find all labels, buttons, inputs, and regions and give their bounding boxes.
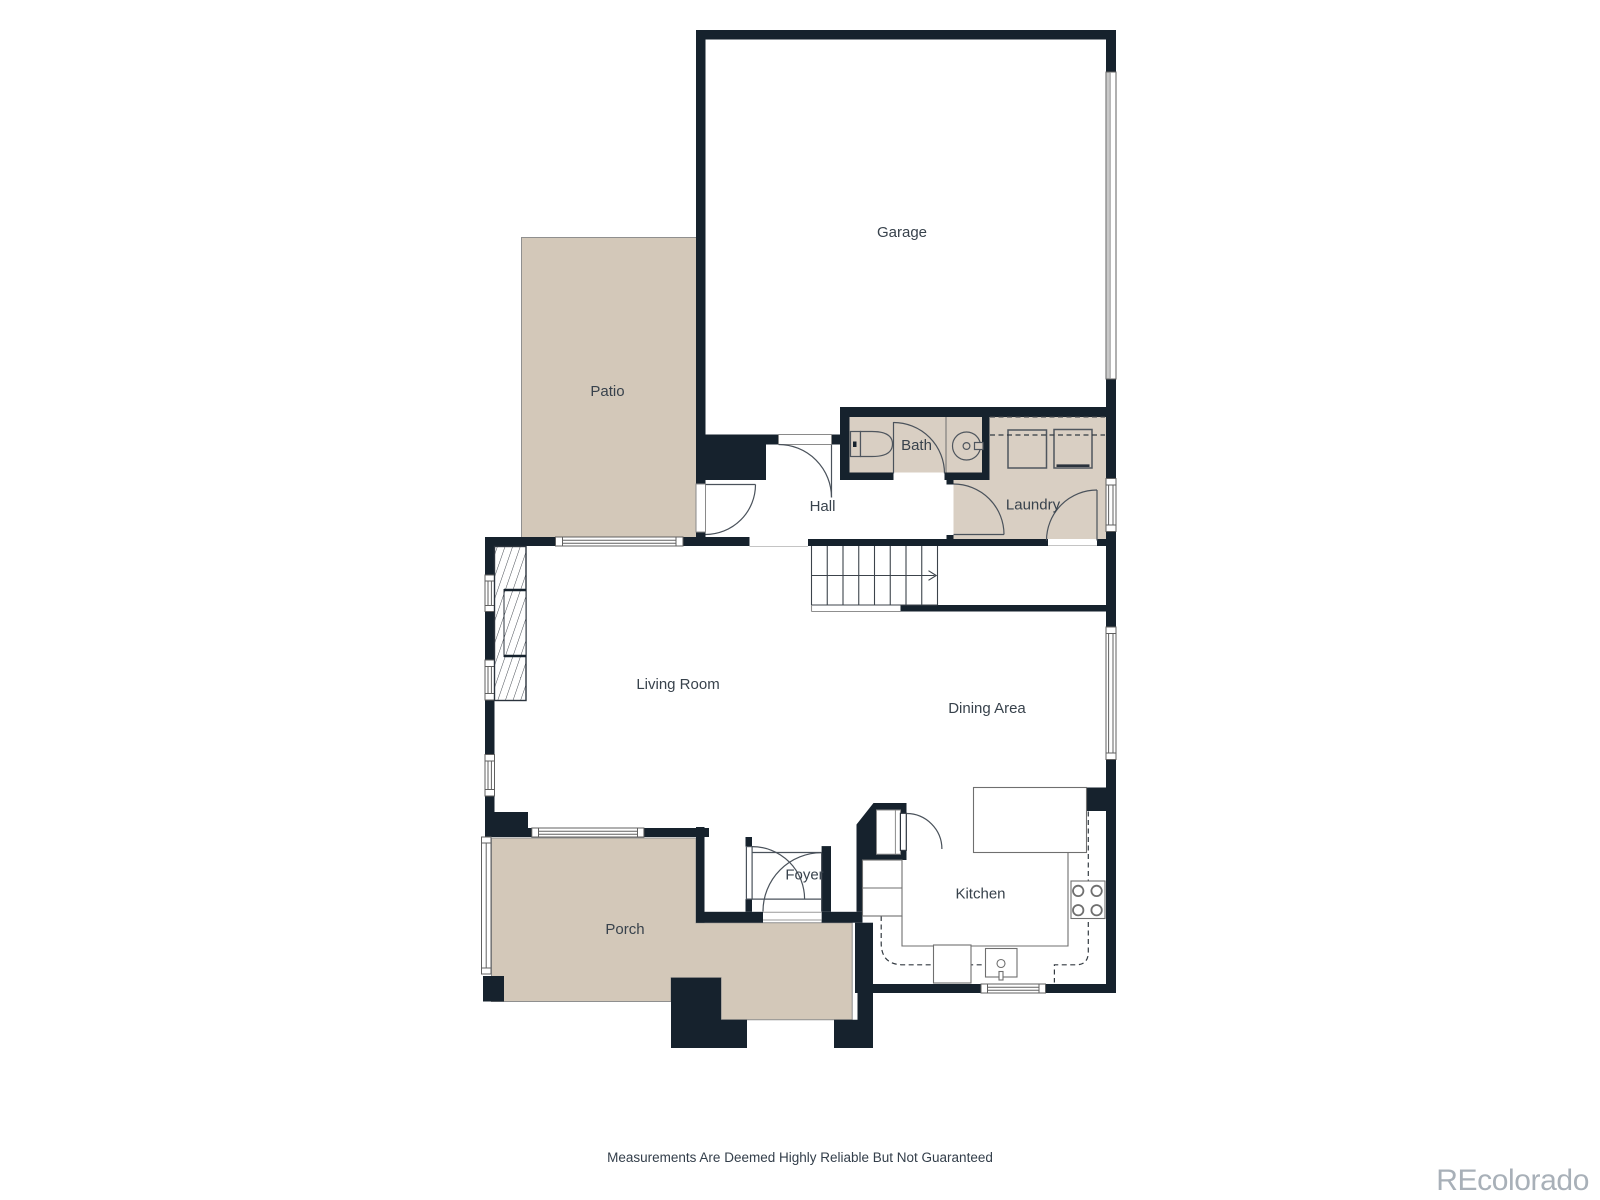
svg-text:Hall: Hall <box>810 498 836 515</box>
svg-text:Kitchen: Kitchen <box>955 886 1005 903</box>
svg-text:Dining Area: Dining Area <box>948 700 1026 717</box>
svg-text:REcolorado: REcolorado <box>1436 1164 1589 1197</box>
svg-text:Porch: Porch <box>605 921 644 938</box>
svg-text:Living Room: Living Room <box>636 676 719 693</box>
svg-text:Foyer: Foyer <box>785 867 823 884</box>
svg-text:Measurements Are Deemed Highly: Measurements Are Deemed Highly Reliable … <box>607 1150 993 1165</box>
svg-text:Garage: Garage <box>877 224 927 241</box>
svg-text:Bath: Bath <box>901 437 932 454</box>
svg-text:Laundry: Laundry <box>1006 497 1061 514</box>
svg-text:Patio: Patio <box>590 383 624 400</box>
